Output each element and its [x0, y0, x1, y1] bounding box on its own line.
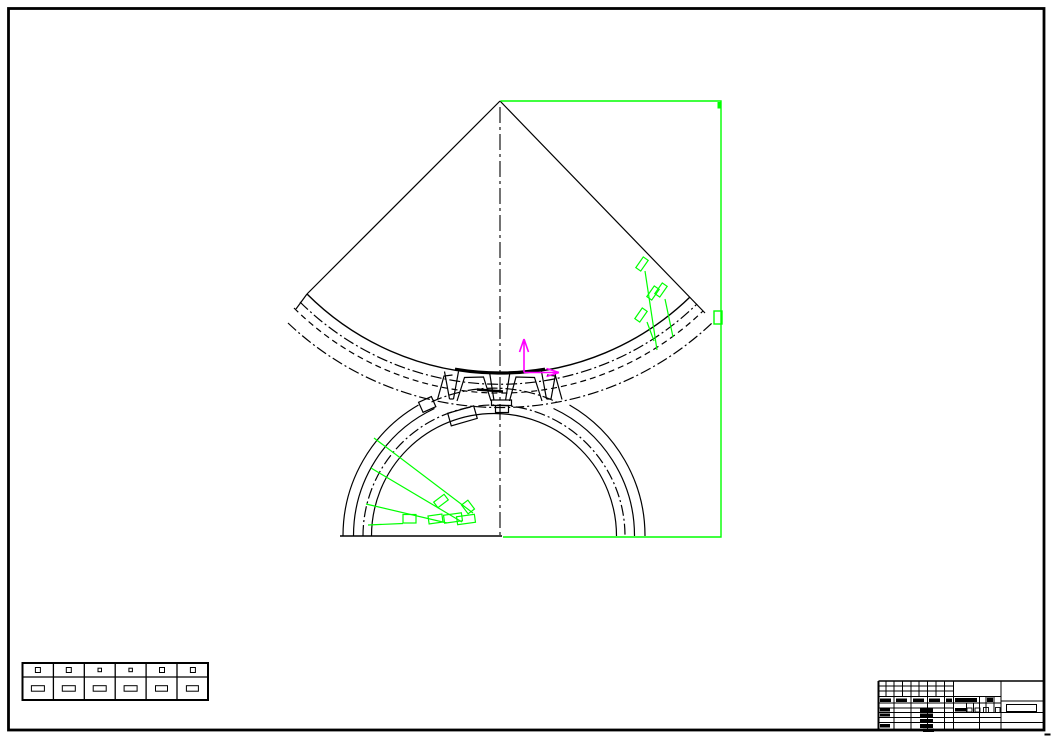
annotation-leader	[368, 524, 403, 526]
annotation-tag	[635, 308, 647, 322]
annotation-leader	[366, 504, 447, 523]
drawing-sheet	[0, 0, 1052, 738]
sector-right-edge	[500, 101, 705, 313]
annotation-tag	[636, 257, 648, 271]
annotation-leader	[374, 438, 473, 513]
selection-window-outline	[501, 101, 722, 537]
selection-corner-mark	[718, 102, 722, 109]
table-cell-mark	[190, 668, 195, 673]
parameter-table	[23, 663, 209, 700]
table-cell-mark	[35, 668, 40, 673]
pinion-gear-view	[340, 388, 645, 536]
title-block	[879, 681, 1044, 732]
corner-tick	[1045, 734, 1051, 736]
sector-tooth-tip-box-inner	[496, 406, 509, 413]
sector-left-edge	[307, 101, 500, 294]
pinion-rim-arc-right	[554, 409, 635, 537]
title-block-field-box	[967, 708, 972, 712]
pinion-pitch-arc	[363, 405, 625, 536]
table-cell-mark	[160, 668, 165, 673]
drawing-canvas	[0, 0, 1052, 738]
table-cell-mark	[93, 686, 106, 692]
pinion-bore-arc	[372, 414, 617, 537]
annotation-tag	[655, 283, 667, 297]
title-block-part-number-box	[1007, 705, 1037, 712]
table-cell-mark	[62, 686, 75, 692]
table-cell-mark	[129, 668, 133, 672]
pitch-contact-line	[477, 390, 503, 392]
sector-root-arc	[294, 308, 703, 393]
sector-tip-arc	[307, 294, 690, 374]
table-cell-mark	[186, 686, 198, 692]
annotation-tag	[461, 500, 474, 514]
pinion-rim-slot-small	[419, 397, 436, 413]
table-cell-mark	[31, 686, 44, 692]
selection-rectangle	[501, 101, 723, 537]
sector-annotation-tags	[635, 257, 673, 350]
annotation-tag	[434, 494, 449, 507]
table-cell-mark	[98, 668, 102, 672]
annotation-tag	[457, 514, 476, 524]
table-cell-mark	[124, 686, 137, 692]
table-cell-mark	[66, 668, 71, 673]
parameter-table-column-dividers	[53, 663, 177, 700]
annotation-tag	[444, 513, 463, 523]
title-block-field-box	[996, 708, 1001, 713]
table-cell-mark	[156, 686, 168, 692]
